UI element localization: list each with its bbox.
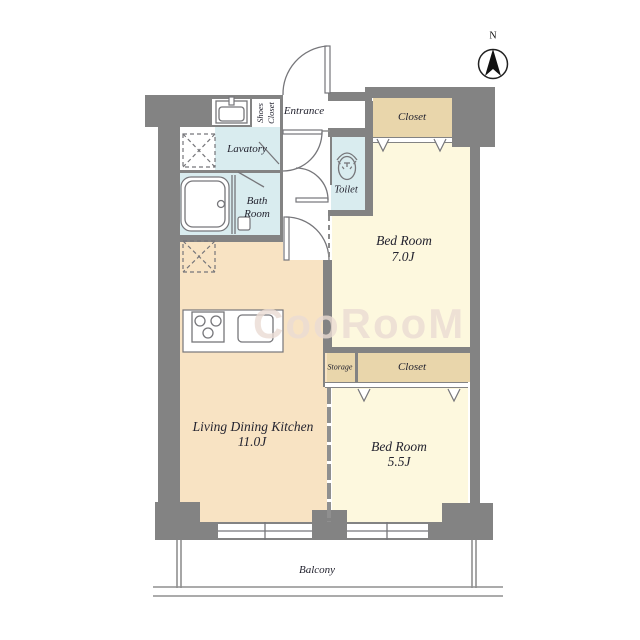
compass-north-label: N: [489, 31, 496, 42]
toilet-icon: [337, 153, 357, 180]
bedroom-south-label: Bed Room: [371, 439, 427, 455]
shoes-closet-label-1: Shoes: [255, 103, 265, 123]
closet-north-label: Closet: [398, 111, 426, 123]
toilet-label: Toilet: [334, 185, 358, 196]
balcony-label: Balcony: [299, 564, 335, 576]
ldk-label: Living Dining Kitchen: [193, 419, 314, 435]
north-compass-icon: [479, 49, 508, 79]
ldk-size: 11.0J: [238, 434, 267, 450]
ldk-door-icon: [284, 217, 329, 260]
storage-label: Storage: [328, 363, 353, 372]
bedroom-north-size: 7.0J: [392, 249, 415, 265]
bath-room-label-2: Room: [244, 208, 270, 220]
closet-south-label: Closet: [398, 361, 426, 373]
bath-room-label-1: Bath: [247, 195, 268, 207]
washbasin-icon: [216, 97, 247, 123]
washing-machine-space-icon: [183, 134, 215, 167]
window-glyphs: [218, 522, 428, 540]
refrigerator-space-icon: [183, 241, 215, 272]
floor-plan: N Entrance Shoes Closet Lavatory Bath Ro…: [0, 0, 640, 640]
entrance-label: Entrance: [284, 105, 324, 117]
bedroom-north-label: Bed Room: [376, 233, 432, 249]
entrance-door-icon: [283, 46, 330, 131]
toilet-door-icon: [296, 168, 328, 202]
shoes-closet-label-2: Closet: [266, 102, 276, 124]
lavatory-door-icon: [259, 130, 322, 171]
lavatory-label: Lavatory: [227, 143, 267, 155]
watermark-text: CooRooM: [253, 300, 465, 348]
bedroom-south-size: 5.5J: [388, 454, 411, 470]
